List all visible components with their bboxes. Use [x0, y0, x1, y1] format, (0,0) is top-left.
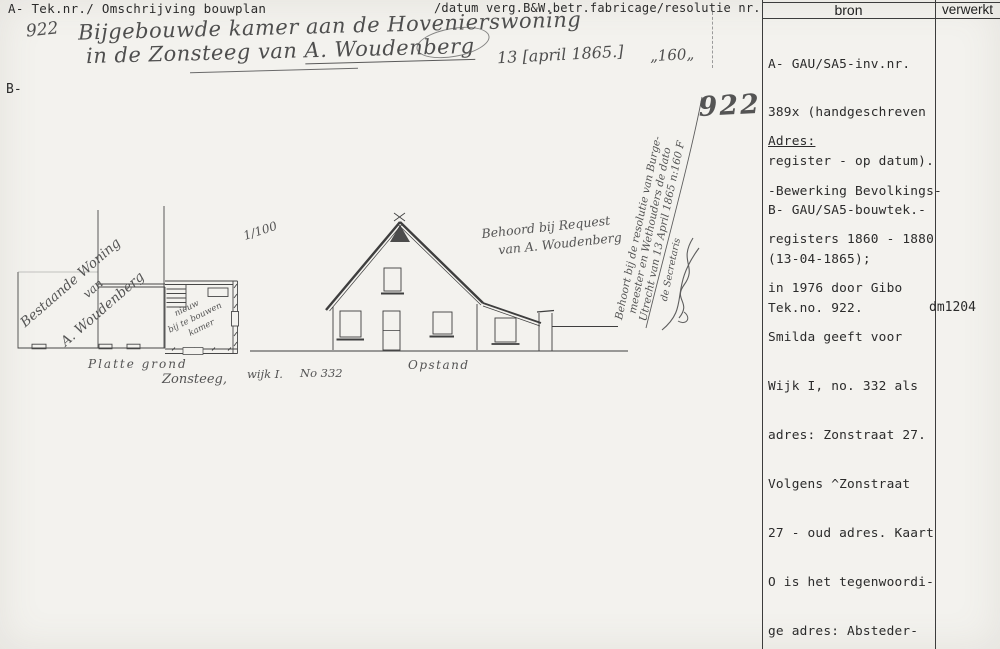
rotated-margin-note: Behoort bij de resolutie van Burge- mees…: [613, 134, 703, 330]
adres-line: Wijk I, no. 332 als: [768, 379, 942, 395]
column-header-verwerkt: verwerkt: [935, 2, 1000, 17]
adres-line: adres: Zonstraat 27.: [768, 428, 942, 444]
adres-line: 27 - oud adres. Kaart: [768, 526, 942, 542]
name-underline-stroke: [190, 68, 358, 73]
entry-tek-number: 922: [25, 18, 59, 41]
adres-line: ge adres: Absteder-: [768, 624, 942, 640]
scale-annotation: 1/100: [242, 219, 280, 243]
entry-description-prefix: in de Zonsteeg van: [86, 38, 305, 68]
elevation-note: Behoord bij Request van A. Woudenberg: [480, 212, 623, 259]
dotted-column-divider: [712, 12, 713, 68]
existing-house-label: Bestaande Woning van A. Woudenberg: [16, 235, 151, 362]
elevation-lines: [250, 213, 628, 351]
archive-card: A- Tek.nr./ Omschrijving bouwplan /datum…: [0, 0, 1000, 649]
adres-block: -Bewerking Bevolkings- registers 1860 - …: [768, 151, 942, 649]
elevation-caption: Opstand: [408, 358, 470, 372]
adres-line: -Bewerking Bevolkings-: [768, 184, 942, 200]
adres-heading: Adres:: [768, 134, 815, 149]
street-name-label: Zonsteeg,: [161, 372, 227, 387]
adres-line: Smilda geeft voor: [768, 330, 942, 346]
entry-date: 13 [april 1865.]: [497, 42, 624, 68]
plan-caption: Platte grond: [87, 357, 188, 371]
bron-line: 389x (handgeschreven: [768, 105, 934, 121]
table-divider-left: [762, 0, 763, 649]
adres-line: O is het tegenwoordi-: [768, 575, 942, 591]
adres-line: in 1976 door Gibo: [768, 281, 942, 297]
verwerkt-code: dm1204: [929, 300, 976, 315]
column-header-bron: bron: [762, 2, 935, 18]
bron-line: A- GAU/SA5-inv.nr.: [768, 57, 934, 73]
entry-resolution-number: „160„: [650, 45, 695, 65]
building-plan-drawing: Bestaande Woning van A. Woudenberg nieuw…: [0, 78, 760, 410]
table-header-underline: [762, 18, 1000, 19]
house-number-label: No 332: [299, 366, 343, 380]
plan-label-line1: Bestaande Woning: [16, 235, 124, 332]
adres-line: registers 1860 - 1880: [768, 232, 942, 248]
wijk-label: wijk I.: [247, 367, 283, 381]
stamp-number: 922: [698, 89, 760, 123]
form-header-left: A- Tek.nr./ Omschrijving bouwplan: [8, 1, 266, 16]
adres-line: Volgens ^Zonstraat: [768, 477, 942, 493]
